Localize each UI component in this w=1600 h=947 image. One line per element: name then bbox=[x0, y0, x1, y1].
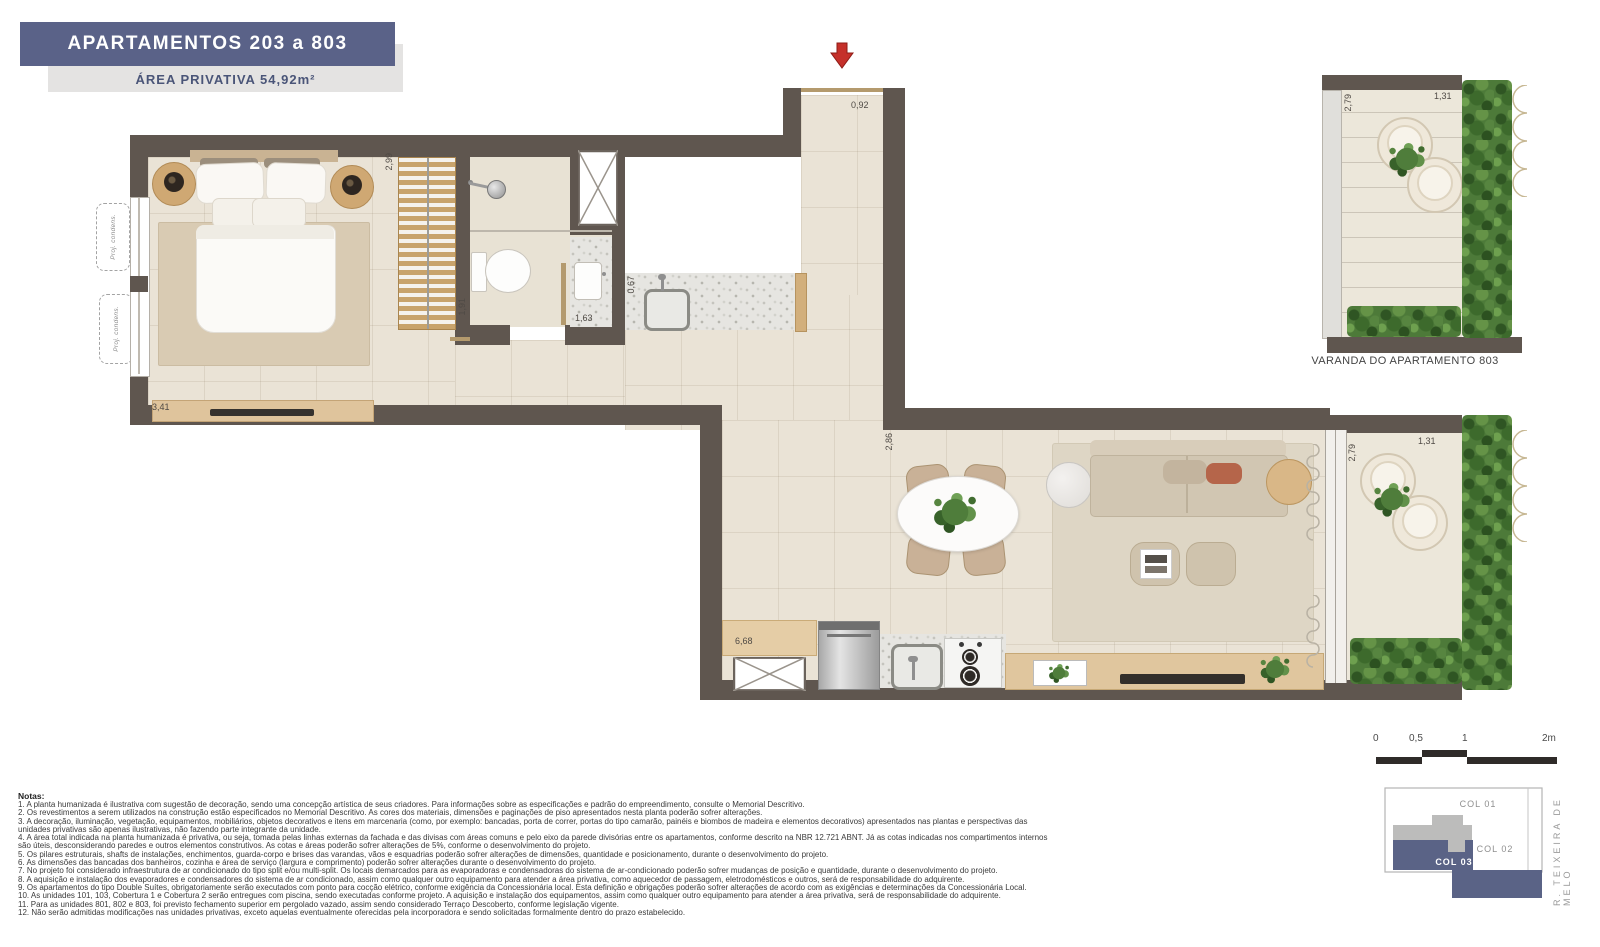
wall bbox=[130, 135, 148, 199]
varanda-greenery-strip bbox=[1347, 306, 1461, 337]
scale-tick-0: 0 bbox=[1373, 733, 1379, 744]
dim-wardrobe: 2,99 bbox=[384, 153, 394, 171]
curtain-line bbox=[1306, 444, 1320, 544]
window-mullion bbox=[130, 276, 148, 292]
condenser-projection-box: Proj. condens. bbox=[96, 203, 130, 271]
kitchen-faucet-head bbox=[658, 274, 666, 280]
keyplan-col02-label: COL 02 bbox=[1477, 844, 1514, 854]
door-threshold bbox=[450, 337, 470, 341]
bed-duvet bbox=[196, 225, 336, 333]
subtitle-banner: ÁREA PRIVATIVA 54,92m² bbox=[48, 66, 403, 92]
bedroom-tv bbox=[210, 409, 314, 416]
cooktop-knob bbox=[959, 642, 964, 647]
balcony-glass-door-track bbox=[1325, 430, 1347, 683]
dim-kitchen: 6,68 bbox=[735, 636, 753, 646]
curtain-line bbox=[1306, 595, 1320, 675]
note-item: 12. Não serão admitidas modificações nas… bbox=[18, 909, 1048, 917]
varanda-plant bbox=[1396, 148, 1418, 170]
scale-tick-2m: 2m bbox=[1542, 733, 1556, 744]
varanda-door-track bbox=[1322, 90, 1342, 339]
kitchen-sink-bottom bbox=[891, 644, 943, 690]
condenser-label: Proj. condens. bbox=[113, 306, 120, 352]
glass-track-line bbox=[1335, 430, 1336, 683]
varanda-greenery-column bbox=[1462, 80, 1512, 338]
title-banner: APARTAMENTOS 203 a 803 bbox=[20, 22, 395, 66]
counter-wood-edge bbox=[795, 273, 807, 332]
notes-block: Notas: 1. A planta humanizada é ilustrat… bbox=[18, 792, 1048, 917]
varanda-caption: VARANDA DO APARTAMENTO 803 bbox=[1300, 355, 1510, 367]
shaft-box bbox=[578, 150, 618, 226]
note-item: 3. A decoração, iluminação, vegetação, e… bbox=[18, 818, 1048, 835]
entrance-door-threshold bbox=[801, 88, 883, 92]
note-item: 4. A área total indicada na planta human… bbox=[18, 834, 1048, 851]
dim-entrance: 0,92 bbox=[851, 100, 869, 110]
dining-table-plant bbox=[942, 499, 969, 526]
pergola-scallops bbox=[1512, 430, 1528, 542]
dim-varanda-depth: 2,79 bbox=[1343, 94, 1353, 112]
sofa-pillow-terracotta bbox=[1206, 463, 1242, 484]
scale-tick-1: 1 bbox=[1462, 733, 1468, 744]
shower-glass-divider bbox=[470, 230, 612, 232]
dim-balcony-depth: 2,79 bbox=[1347, 444, 1357, 462]
dim-vanity: 1,63 bbox=[575, 313, 593, 323]
pergola-scallops bbox=[1512, 85, 1528, 197]
keyplan-col03-label: COL 03 bbox=[1435, 857, 1472, 867]
wall bbox=[1330, 415, 1462, 433]
wall bbox=[783, 88, 801, 157]
kitchen-faucet-bottom bbox=[912, 660, 915, 680]
coffee-table-books bbox=[1140, 549, 1172, 579]
wall bbox=[455, 325, 510, 345]
shaft-box bbox=[733, 657, 806, 691]
page-title: APARTAMENTOS 203 a 803 bbox=[67, 33, 347, 55]
vanity-sink bbox=[574, 262, 602, 300]
planter-plant bbox=[1053, 667, 1066, 680]
varanda-wall bbox=[1327, 337, 1522, 353]
living-tv bbox=[1120, 674, 1245, 684]
cooktop-burner bbox=[960, 666, 980, 686]
bed-duvet-fold bbox=[196, 225, 334, 239]
balcony-greenery-strip bbox=[1350, 638, 1462, 684]
table-lamp bbox=[342, 175, 362, 195]
console-plant bbox=[1266, 660, 1284, 678]
condenser-label: Proj. condens. bbox=[110, 214, 117, 260]
table-lamp bbox=[164, 172, 184, 192]
passage-floor bbox=[455, 340, 625, 409]
marble-side-table bbox=[1046, 462, 1092, 508]
entrance-arrow-icon bbox=[830, 42, 854, 69]
kitchen-faucet-head-bottom bbox=[908, 656, 918, 662]
sofa-pillow bbox=[1163, 460, 1207, 484]
notes-list: 1. A planta humanizada é ilustrativa com… bbox=[18, 801, 1048, 917]
wardrobe bbox=[398, 157, 456, 330]
ottoman bbox=[1186, 542, 1236, 586]
scale-bar-segment bbox=[1422, 750, 1467, 757]
scale-bar-segment bbox=[1376, 757, 1422, 764]
dim-bedroom-width: 3,41 bbox=[152, 402, 170, 412]
dishwasher-handle bbox=[827, 634, 871, 637]
key-plan: COL 01 COL 02 COL 03 bbox=[1383, 786, 1548, 902]
book bbox=[1145, 566, 1167, 573]
dim-counter: 0,67 bbox=[626, 276, 636, 294]
varanda-wall bbox=[1322, 75, 1462, 90]
book bbox=[1145, 555, 1167, 563]
kitchen-sink bbox=[644, 289, 690, 331]
floor-plan-page: APARTAMENTOS 203 a 803 ÁREA PRIVATIVA 54… bbox=[0, 0, 1600, 947]
keyplan-col01-label: COL 01 bbox=[1460, 799, 1497, 809]
dishwasher bbox=[818, 621, 880, 690]
vanity-faucet bbox=[602, 272, 606, 276]
bed-pillow-small bbox=[252, 198, 306, 228]
private-area-label: ÁREA PRIVATIVA 54,92m² bbox=[136, 72, 316, 87]
wardrobe-rail bbox=[427, 158, 429, 329]
dim-balcony-width: 1,31 bbox=[1418, 436, 1436, 446]
wall bbox=[883, 88, 905, 430]
dim-bathroom: 1,91 bbox=[457, 298, 467, 316]
entry-corridor-floor bbox=[801, 95, 883, 295]
dim-living: 2,86 bbox=[884, 433, 894, 451]
scale-tick-05: 0,5 bbox=[1409, 733, 1423, 744]
wall bbox=[905, 408, 1330, 430]
balcony-greenery-column bbox=[1462, 415, 1512, 690]
condenser-projection-box: Proj. condens. bbox=[99, 294, 133, 364]
cooktop-knob bbox=[977, 642, 982, 647]
wall bbox=[700, 405, 722, 700]
toilet-bowl bbox=[485, 249, 531, 293]
street-label: R. TEIXEIRA DE MELO bbox=[1552, 786, 1572, 906]
balcony-plant bbox=[1381, 488, 1403, 510]
cooktop bbox=[944, 638, 1002, 688]
dishwasher-panel bbox=[819, 622, 879, 630]
shower-head bbox=[487, 180, 506, 199]
bathroom-door bbox=[561, 263, 566, 325]
wall bbox=[565, 325, 625, 345]
dim-varanda-width: 1,31 bbox=[1434, 91, 1452, 101]
scale-bar-segment bbox=[1467, 757, 1557, 764]
cooktop-burner bbox=[962, 649, 978, 665]
